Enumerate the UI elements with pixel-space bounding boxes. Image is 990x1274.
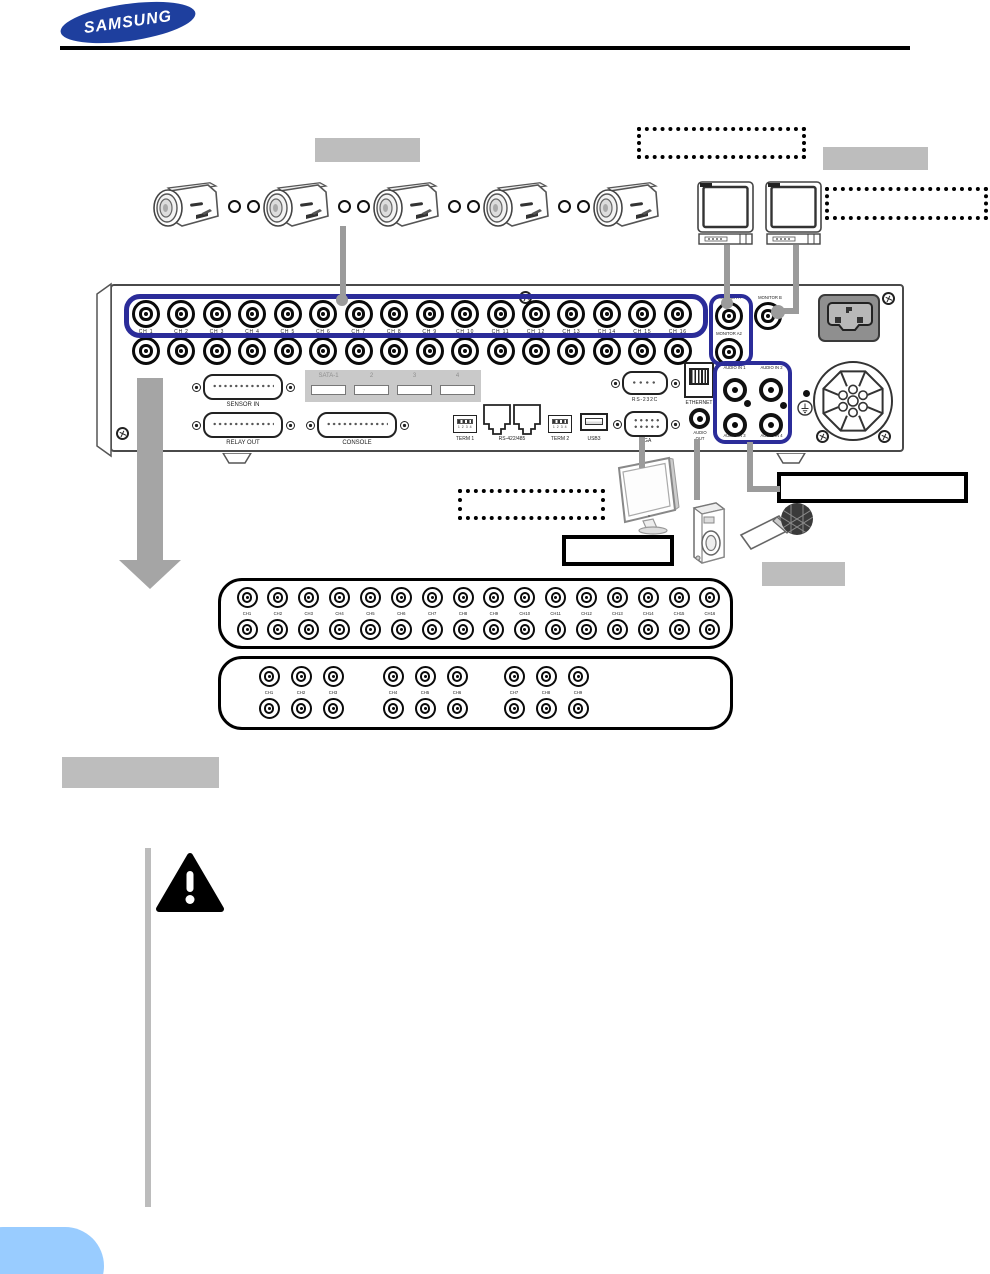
loop-channel-group: CH4CH5CH6 — [381, 666, 469, 719]
usb-port — [580, 413, 608, 431]
db25-pins — [326, 418, 388, 432]
bnc-connector — [576, 587, 597, 608]
bnc-center — [647, 628, 650, 631]
sata-slots — [311, 385, 475, 395]
bnc-ring — [139, 344, 152, 357]
bnc-connector — [298, 587, 319, 608]
audio-in-highlight — [713, 361, 792, 444]
channel-label: CH9 — [490, 611, 498, 616]
bnc-ring — [175, 344, 188, 357]
warning-icon — [154, 851, 226, 920]
bnc-ring — [396, 592, 406, 602]
loop-panel-9ch: CH1CH2CH3 CH4CH5CH6 CH7CH8CH9 — [218, 656, 733, 730]
bnc-ring — [246, 344, 259, 357]
loop-channel-column: CH2 — [289, 666, 313, 719]
callout-monitor-b — [823, 147, 928, 170]
bnc-connector — [536, 666, 557, 687]
bnc-center — [766, 314, 770, 318]
loop-channel-column: CH9 — [482, 587, 506, 640]
channel-label: CH8 — [542, 690, 550, 695]
bnc-connector — [309, 337, 337, 365]
bnc-connector — [203, 337, 231, 365]
bnc-ring — [273, 592, 283, 602]
bnc-ring — [388, 344, 401, 357]
sata-label: 2 — [354, 373, 389, 379]
loop-channel-column: CH5 — [413, 666, 437, 719]
loop-channel-column: CH4 — [381, 666, 405, 719]
bnc-ring — [541, 703, 551, 713]
bnc-ring — [328, 703, 338, 713]
microphone-icon — [733, 499, 817, 558]
bnc-connector — [664, 337, 692, 365]
db25-pins — [212, 380, 274, 394]
samsung-logo: SAMSUNG — [58, 0, 198, 50]
bnc-center — [307, 628, 310, 631]
page-number-pill — [0, 1227, 104, 1274]
db15-pins — [633, 416, 659, 432]
bnc-ring — [551, 624, 561, 634]
connector-screw — [671, 420, 680, 429]
down-arrow-shaft — [137, 378, 163, 564]
bnc-center — [338, 628, 341, 631]
spacer-dots — [338, 200, 370, 212]
console-connector — [317, 412, 397, 438]
bnc-center — [321, 349, 325, 353]
bnc-ring — [581, 592, 591, 602]
bnc-center — [513, 707, 516, 710]
bnc-ring — [304, 592, 314, 602]
sata-label: 3 — [397, 373, 432, 379]
bnc-center — [492, 628, 495, 631]
bnc-center — [300, 707, 303, 710]
bnc-ring — [600, 344, 613, 357]
bnc-ring — [427, 592, 437, 602]
bnc-connector — [638, 619, 659, 640]
bnc-connector — [545, 587, 566, 608]
channel-label: CH3 — [305, 611, 313, 616]
bnc-connector — [451, 337, 479, 365]
rs422-label: RS-422/485 — [478, 436, 546, 442]
bnc-ring — [643, 624, 653, 634]
bnc-connector — [391, 587, 412, 608]
bnc-connector — [291, 666, 312, 687]
channel-label: CH12 — [581, 611, 592, 616]
bnc-connector — [298, 619, 319, 640]
bnc-center — [585, 596, 588, 599]
bnc-ring — [573, 671, 583, 681]
monitor-b-cable-end — [771, 305, 785, 319]
bnc-ring — [643, 592, 653, 602]
channel-label: CH7 — [510, 690, 518, 695]
bnc-center — [523, 628, 526, 631]
bnc-connector — [514, 619, 535, 640]
bnc-connector — [699, 587, 720, 608]
loop-channel-column: CH3 — [297, 587, 321, 640]
loop-channel-column: CH6 — [445, 666, 469, 719]
bnc-connector — [487, 337, 515, 365]
bnc-connector — [391, 619, 412, 640]
bnc-connector — [360, 587, 381, 608]
audio-in-cable-line-h — [747, 486, 780, 492]
channel-label: CH4 — [389, 690, 397, 695]
bnc-ring — [242, 592, 252, 602]
bnc-connector — [360, 619, 381, 640]
callout-monitor-a-dotted — [637, 127, 806, 159]
camera-icon — [590, 182, 668, 236]
terminal-pins — [552, 419, 568, 424]
term1-block: 1 2 3 4 — [453, 415, 477, 433]
channel-label: CH6 — [453, 690, 461, 695]
bnc-center — [545, 707, 548, 710]
bnc-ring — [281, 344, 294, 357]
terminal-pins — [457, 419, 473, 424]
connector-screw — [286, 421, 295, 430]
bnc-connector — [267, 587, 288, 608]
terminal-pin-numbers: 1 2 3 4 — [458, 425, 472, 429]
bnc-center — [647, 596, 650, 599]
channel-label: CH8 — [459, 611, 467, 616]
bnc-ring — [520, 592, 530, 602]
bnc-center — [369, 596, 372, 599]
camera-icon — [480, 182, 558, 236]
audio-out-label-1: AUDIO — [686, 430, 714, 435]
bnc-connector — [383, 698, 404, 719]
connector-screw — [613, 420, 622, 429]
bnc-center — [554, 596, 557, 599]
bnc-ring — [352, 344, 365, 357]
dot — [558, 200, 571, 213]
rs232-connector — [622, 371, 668, 395]
term2-block: 1 2 3 4 — [548, 415, 572, 433]
header-rule — [60, 46, 910, 50]
sata-labels: SATA-1 2 3 4 — [311, 373, 475, 379]
bnc-connector — [536, 698, 557, 719]
dot — [448, 200, 461, 213]
loop-channel-column: CH15 — [667, 587, 691, 640]
sata-slot — [354, 385, 389, 395]
connector-screw — [671, 379, 680, 388]
manual-page: SAMSUNG — [0, 0, 990, 1274]
bnc-ring — [565, 344, 578, 357]
bnc-center — [246, 596, 249, 599]
channel-label: CH1 — [265, 690, 273, 695]
dot — [467, 200, 480, 213]
loop-channel-column: CH14 — [636, 587, 660, 640]
channel-label: CH14 — [643, 611, 654, 616]
camera-icon — [260, 182, 338, 236]
bnc-center — [534, 349, 538, 353]
bnc-center — [492, 596, 495, 599]
bnc-connector — [291, 698, 312, 719]
bnc-center — [268, 675, 271, 678]
bnc-ring — [674, 624, 684, 634]
sata-slot — [397, 385, 432, 395]
loop-channel-column: CH11 — [544, 587, 568, 640]
bnc-connector — [422, 587, 443, 608]
bnc-connector — [238, 337, 266, 365]
connector-screw — [192, 383, 201, 392]
channel-label: CH15 — [674, 611, 685, 616]
dot — [577, 200, 590, 213]
bnc-ring — [242, 624, 252, 634]
bnc-ring — [452, 703, 462, 713]
bnc-connector — [453, 587, 474, 608]
bnc-connector — [593, 337, 621, 365]
bnc-ring — [529, 344, 542, 357]
callout-cameras — [315, 138, 420, 162]
bnc-connector — [329, 587, 350, 608]
audio-out-label-2: OUT — [686, 436, 714, 441]
video-loop-row — [132, 337, 692, 365]
channel-label: CH10 — [519, 611, 530, 616]
sata-label: SATA-1 — [311, 373, 346, 379]
bnc-ring — [551, 592, 561, 602]
bnc-connector — [259, 666, 280, 687]
bnc-ring — [573, 703, 583, 713]
channel-label: CH2 — [274, 611, 282, 616]
bnc-center — [431, 628, 434, 631]
bnc-connector — [167, 337, 195, 365]
usb-label: USB3 — [580, 436, 608, 442]
connector-screw — [306, 421, 315, 430]
bnc-center — [678, 628, 681, 631]
bnc-ring — [705, 592, 715, 602]
connector-screw — [611, 379, 620, 388]
console-label: CONSOLE — [317, 440, 397, 446]
bnc-ring — [671, 344, 684, 357]
relay-out-label: RELAY OUT — [203, 440, 283, 446]
ethernet-port — [684, 362, 714, 398]
monitor-b-label: MONITOR B — [748, 295, 792, 300]
sata-label: 4 — [440, 373, 475, 379]
bnc-ring — [264, 703, 274, 713]
vga-cable-line — [639, 437, 645, 468]
vga-connector — [624, 411, 668, 437]
callout-microphone — [762, 562, 845, 586]
bnc-ring — [420, 671, 430, 681]
connector-screw — [400, 421, 409, 430]
audio-in-cable-line-v — [747, 442, 753, 492]
bnc-ring — [420, 703, 430, 713]
loop-channel-column: CH4 — [328, 587, 352, 640]
bnc-connector — [132, 337, 160, 365]
monitor-b-cable-line-v — [793, 245, 799, 314]
bnc-connector — [237, 619, 258, 640]
sata-bays: SATA-1 2 3 4 — [305, 370, 481, 402]
bnc-connector — [237, 587, 258, 608]
sata-slot — [440, 385, 475, 395]
bnc-center — [462, 628, 465, 631]
connector-screw — [192, 421, 201, 430]
bnc-ring — [334, 592, 344, 602]
fan-grille — [811, 359, 895, 448]
ground-terminal — [797, 400, 813, 421]
loop-channel-group: CH1CH2CH3 — [257, 666, 345, 719]
channel-label: CH4 — [335, 611, 343, 616]
bnc-connector — [329, 619, 350, 640]
loop-channel-column: CH3 — [321, 666, 345, 719]
speaker-icon — [684, 501, 728, 570]
spacer-dots — [448, 200, 480, 212]
bnc-connector — [415, 698, 436, 719]
bnc-ring — [520, 624, 530, 634]
crt-monitor-b-icon — [765, 181, 823, 247]
bnc-center — [456, 707, 459, 710]
bnc-connector — [628, 337, 656, 365]
loop-channel-column: CH7 — [420, 587, 444, 640]
bnc-ring — [427, 624, 437, 634]
audio-out-jack — [689, 408, 710, 429]
sata-slot — [311, 385, 346, 395]
bnc-center — [678, 596, 681, 599]
bnc-ring — [458, 592, 468, 602]
bnc-center — [332, 675, 335, 678]
loop-channel-column: CH7 — [502, 666, 526, 719]
bnc-center — [708, 596, 711, 599]
bnc-center — [276, 596, 279, 599]
camera-row — [150, 182, 668, 236]
channel-label: CH5 — [421, 690, 429, 695]
bnc-center — [676, 349, 680, 353]
channel-label: CH2 — [297, 690, 305, 695]
loop-channel-column: CH13 — [605, 587, 629, 640]
loop-channel-column: CH1 — [257, 666, 281, 719]
bnc-ring — [264, 671, 274, 681]
bnc-center — [179, 349, 183, 353]
monitor-a-cable-line — [724, 245, 730, 305]
bnc-center — [332, 707, 335, 710]
bnc-center — [605, 349, 609, 353]
callout-section-heading — [62, 757, 219, 788]
vga-label: VGA — [624, 438, 668, 444]
bnc-center — [215, 349, 219, 353]
channel-label: CH3 — [329, 690, 337, 695]
ethernet-slot — [689, 368, 709, 385]
bnc-connector — [415, 666, 436, 687]
bnc-ring — [210, 344, 223, 357]
bnc-ring — [328, 671, 338, 681]
callout-vga-dotted — [458, 489, 605, 520]
loop16-columns: CH1CH2CH3CH4CH5CH6CH7CH8CH9CH10CH11CH12C… — [235, 587, 722, 640]
usb-slot — [585, 418, 603, 425]
db25-pins — [212, 418, 274, 432]
bnc-center — [640, 349, 644, 353]
bnc-ring — [317, 344, 330, 357]
bnc-connector — [522, 337, 550, 365]
bnc-center — [250, 349, 254, 353]
bnc-center — [431, 596, 434, 599]
bnc-connector — [323, 698, 344, 719]
bnc-connector — [274, 337, 302, 365]
bnc-center — [307, 596, 310, 599]
bnc-ring — [541, 671, 551, 681]
bnc-center — [392, 675, 395, 678]
bnc-connector — [323, 666, 344, 687]
bnc-center — [708, 628, 711, 631]
bnc-center — [400, 628, 403, 631]
bnc-ring — [365, 624, 375, 634]
channel-label: CH5 — [366, 611, 374, 616]
bnc-center — [144, 349, 148, 353]
bnc-connector — [504, 698, 525, 719]
bnc-ring — [334, 624, 344, 634]
bnc-connector — [447, 666, 468, 687]
loop-channel-column: CH9 — [566, 666, 590, 719]
dot — [228, 200, 241, 213]
loop-channel-column: CH12 — [574, 587, 598, 640]
audio-out-cable-line — [694, 439, 700, 500]
bnc-connector — [259, 698, 280, 719]
relay-out-connector — [203, 412, 283, 438]
bnc-center — [392, 707, 395, 710]
bnc-ring — [388, 671, 398, 681]
bnc-ring — [489, 624, 499, 634]
channel-label: CH9 — [574, 690, 582, 695]
panel-foot — [222, 451, 252, 469]
rs232-label: RS-232C — [622, 397, 668, 403]
bnc-center — [300, 675, 303, 678]
db9-pins — [631, 377, 659, 389]
camera-icon — [370, 182, 448, 236]
spacer-dots — [228, 200, 260, 212]
power-inlet — [818, 294, 880, 347]
bnc-connector — [422, 619, 443, 640]
bnc-ring — [612, 592, 622, 602]
bnc-center — [545, 675, 548, 678]
bnc-ring — [494, 344, 507, 357]
monitor-a-cable-end — [721, 297, 733, 309]
bnc-connector — [576, 619, 597, 640]
bnc-center — [462, 596, 465, 599]
spacer-dots — [558, 200, 590, 212]
bnc-ring — [458, 344, 471, 357]
bnc-center — [424, 707, 427, 710]
loop-channel-column: CH10 — [513, 587, 537, 640]
sensor-in-label: SENSOR IN — [203, 402, 283, 408]
bnc-connector — [453, 619, 474, 640]
bnc-center — [585, 628, 588, 631]
loop-channel-column: CH8 — [451, 587, 475, 640]
lcd-monitor-icon — [613, 456, 685, 541]
loop-channel-column: CH6 — [389, 587, 413, 640]
bnc-connector — [669, 619, 690, 640]
panel-left-facet — [95, 282, 112, 463]
bnc-connector — [483, 619, 504, 640]
loop-channel-column: CH2 — [266, 587, 290, 640]
bnc-connector — [416, 337, 444, 365]
bnc-center — [246, 628, 249, 631]
video-in-highlight — [124, 294, 708, 338]
bnc-center — [577, 675, 580, 678]
bnc-center — [616, 628, 619, 631]
bnc-connector — [545, 619, 566, 640]
bnc-connector — [514, 587, 535, 608]
bnc-ring — [296, 671, 306, 681]
bnc-center — [456, 675, 459, 678]
term2-label: TERM 2 — [541, 436, 579, 442]
bnc-center — [569, 349, 573, 353]
bnc-connector — [504, 666, 525, 687]
dot — [338, 200, 351, 213]
dot — [247, 200, 260, 213]
connector-screw — [286, 383, 295, 392]
bnc-center — [616, 596, 619, 599]
bnc-center — [554, 628, 557, 631]
bnc-connector — [568, 666, 589, 687]
callout-monitor-b-dotted — [825, 187, 988, 220]
bnc-ring — [509, 671, 519, 681]
channel-label: CH7 — [428, 611, 436, 616]
